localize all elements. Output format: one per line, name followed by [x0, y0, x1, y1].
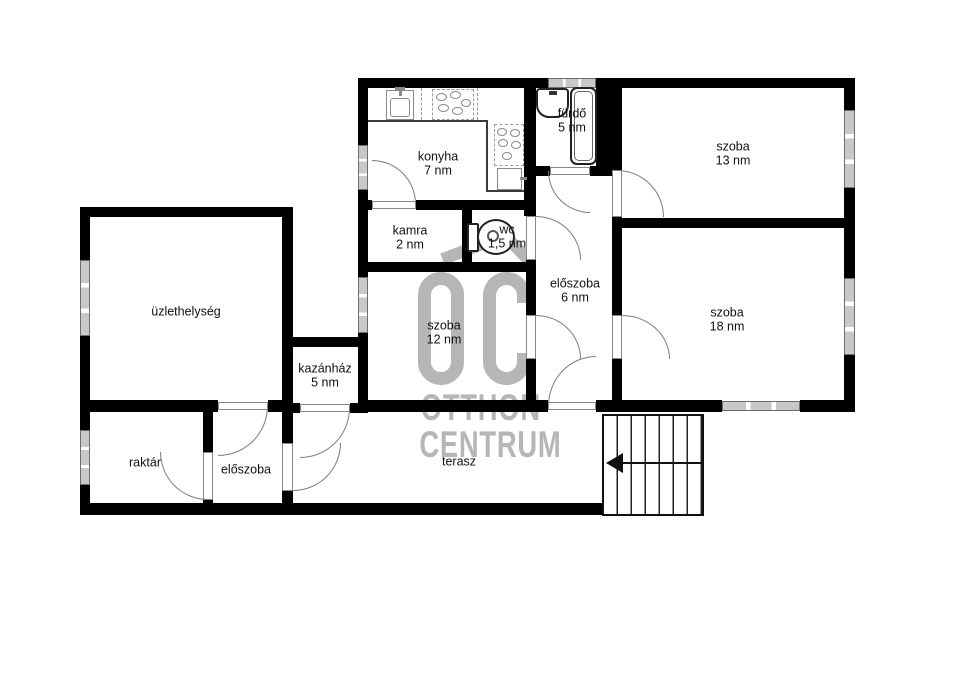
stove-burner [450, 91, 461, 99]
wall-segment [612, 218, 855, 228]
wall-segment [358, 78, 548, 88]
window-szoba18-bottom [722, 401, 800, 411]
door-swing-arc [372, 160, 416, 204]
wall-segment [612, 217, 622, 315]
room-name: kazánház [298, 363, 352, 377]
door-swing-arc [300, 408, 350, 458]
wall-segment [282, 337, 368, 347]
room-label-eloszoba-also: előszoba [221, 463, 271, 477]
window-raktar-left [80, 430, 90, 485]
stairs-direction-line [620, 462, 702, 464]
stove-burner [461, 99, 471, 107]
room-name: raktár [129, 456, 161, 470]
room-label-wc: wc 1,5 nm [488, 224, 526, 251]
wall-segment [536, 400, 548, 412]
room-area: 5 nm [298, 376, 352, 390]
faucet-icon [520, 177, 527, 180]
room-label-kazanhaz: kazánház 5 nm [298, 363, 352, 390]
stove-burner [452, 107, 463, 115]
door-swing-arc [548, 171, 590, 213]
stove-burner [502, 152, 512, 160]
room-label-eloszoba-felso: előszoba 6 nm [550, 278, 600, 305]
door-wc [526, 216, 536, 260]
door-swing-arc [218, 406, 268, 456]
floor-plan: OTTHON CENTRUM [0, 0, 960, 679]
window-konyha-left [358, 145, 368, 190]
room-name: wc [488, 224, 526, 238]
door-swing-arc [536, 216, 581, 260]
stove-burner [436, 93, 447, 101]
room-name: üzlethelység [151, 305, 221, 319]
wall-segment [526, 260, 536, 315]
kitchen-counter-edge [486, 190, 524, 192]
wall-segment [80, 400, 218, 412]
watermark-text-line2: CENTRUM [419, 424, 540, 466]
kitchen-counter-edge [486, 120, 488, 192]
wall-segment [844, 78, 855, 110]
wall-segment [80, 207, 293, 217]
room-area: 6 nm [550, 291, 600, 305]
wall-segment [614, 78, 855, 88]
kitchen-sink-basin [390, 98, 410, 117]
wall-segment [80, 336, 90, 430]
room-name: terasz [442, 455, 476, 469]
stove-burner [438, 104, 449, 112]
room-name: szoba [710, 307, 745, 321]
wall-segment [358, 78, 368, 145]
kitchen-counter-edge [368, 120, 488, 122]
window-szoba12-left [358, 277, 368, 333]
kitchen-counter-divider [421, 88, 422, 120]
wall-segment [596, 78, 622, 176]
room-area: 12 nm [427, 333, 462, 347]
door-swing-arc [160, 452, 208, 500]
room-label-szoba13: szoba 13 nm [716, 141, 751, 168]
room-name: szoba [716, 141, 751, 155]
faucet-icon [399, 87, 402, 96]
stove-burner [511, 141, 521, 149]
wall-segment [844, 188, 855, 278]
room-name: szoba [427, 320, 462, 334]
wall-segment [524, 78, 536, 176]
staircase [602, 414, 704, 516]
wall-segment [350, 403, 368, 413]
wall-segment [590, 166, 612, 176]
wall-segment [358, 200, 372, 210]
window-szoba18-right [844, 278, 855, 355]
wall-segment [358, 262, 536, 272]
room-label-konyha: konyha 7 nm [418, 151, 458, 178]
stove-burner [498, 139, 508, 147]
room-name: kamra [393, 225, 428, 239]
kitchen-counter-divider [477, 88, 478, 120]
door-swing-arc [536, 315, 581, 359]
wall-segment [282, 403, 300, 413]
door-szoba12 [526, 315, 536, 359]
room-name: előszoba [221, 463, 271, 477]
room-area: 7 nm [418, 164, 458, 178]
wall-segment [358, 400, 536, 412]
wall-segment [203, 412, 213, 452]
room-label-raktar: raktár [129, 456, 161, 470]
door-eloszoba-also-terasz [282, 443, 293, 491]
room-label-furdo: fürdő 5 nm [558, 108, 587, 135]
faucet-icon [549, 91, 557, 95]
wall-segment [416, 200, 536, 210]
room-area: 5 nm [558, 121, 587, 135]
window-uzlethelyseg-left [80, 260, 90, 336]
room-name: fürdő [558, 108, 587, 122]
stove-burner [510, 129, 520, 137]
kitchen-sink-icon [497, 168, 522, 190]
door-swing-arc [548, 356, 596, 406]
room-area: 13 nm [716, 154, 751, 168]
room-label-terasz: terasz [442, 455, 476, 469]
room-area: 18 nm [710, 320, 745, 334]
room-label-uzlethelyseg: üzlethelység [151, 305, 221, 319]
window-szoba13-right [844, 110, 855, 188]
stove-burner [497, 128, 507, 136]
room-name: konyha [418, 151, 458, 165]
stairs-direction-arrow-icon [606, 453, 623, 473]
door-szoba18 [612, 315, 622, 359]
room-area: 2 nm [393, 238, 428, 252]
room-label-kamra: kamra 2 nm [393, 225, 428, 252]
wall-segment [80, 503, 605, 515]
door-swing-arc [617, 170, 664, 217]
wall-segment [844, 355, 855, 412]
room-label-szoba18: szoba 18 nm [710, 307, 745, 334]
room-name: előszoba [550, 278, 600, 292]
wall-segment [612, 400, 722, 412]
door-swing-arc [622, 315, 670, 359]
wall-segment [524, 176, 536, 216]
room-area: 1,5 nm [488, 237, 526, 251]
wall-segment [80, 207, 90, 260]
room-label-szoba12: szoba 12 nm [427, 320, 462, 347]
